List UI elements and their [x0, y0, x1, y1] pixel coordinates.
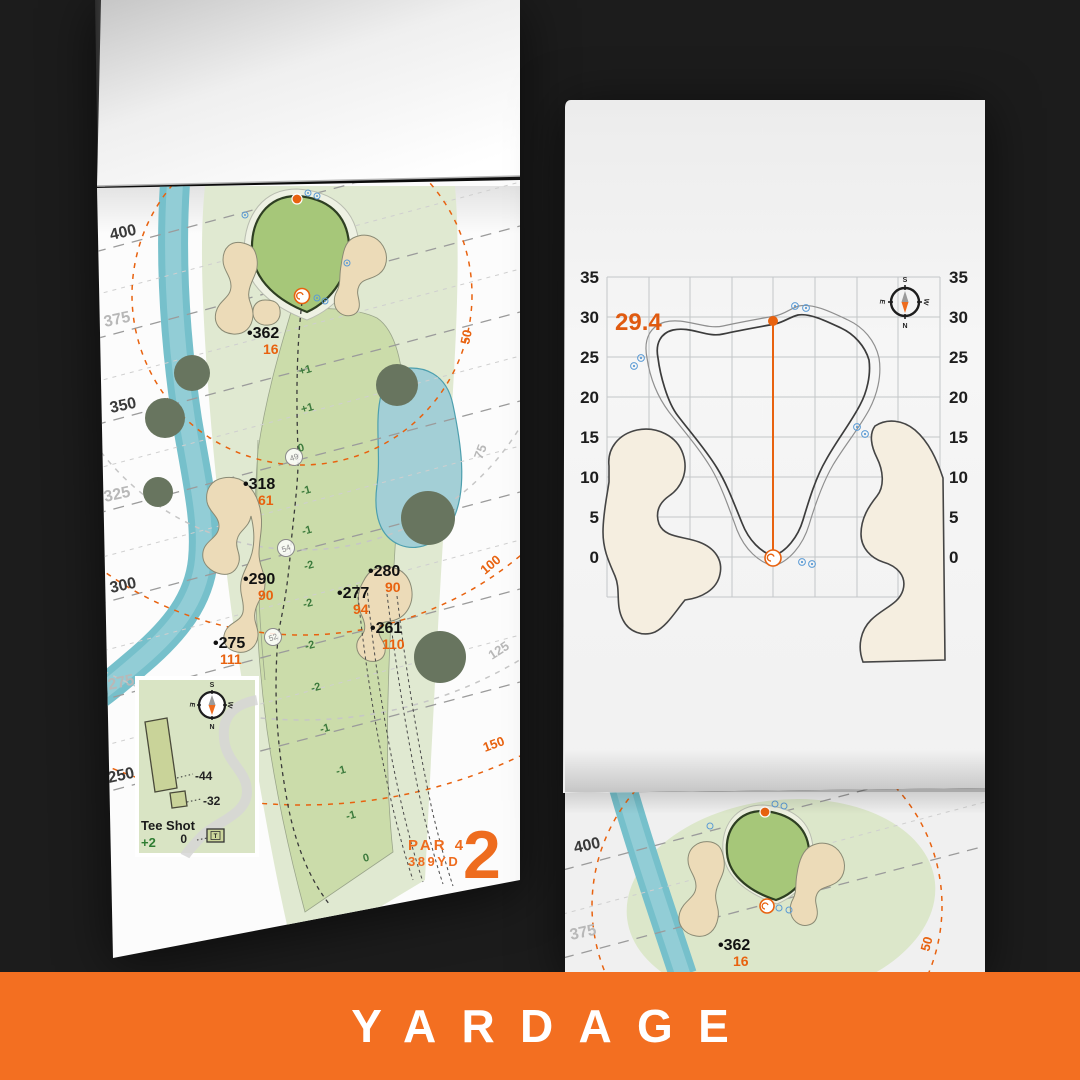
svg-text:30: 30	[949, 308, 968, 327]
svg-text:25: 25	[949, 348, 968, 367]
right-book: 400 375 •362 16 50 35 30 25	[563, 100, 985, 975]
svg-text:90: 90	[385, 579, 401, 595]
yardage-book-scene: 49 54 52 +1 +1 0 -1 -1 -2 -2 -2 -2 -1 -1…	[0, 0, 1080, 1080]
svg-text:•277: •277	[337, 585, 369, 602]
svg-text:90: 90	[258, 587, 274, 603]
front-tee-box	[170, 791, 187, 808]
svg-text:61: 61	[258, 492, 274, 508]
svg-text:16: 16	[733, 953, 749, 969]
svg-text:111: 111	[220, 651, 242, 667]
svg-text:S: S	[903, 277, 908, 284]
svg-text:50: 50	[457, 328, 475, 345]
svg-text:N: N	[209, 724, 214, 731]
svg-text:0: 0	[949, 548, 958, 567]
svg-text:20: 20	[949, 388, 968, 407]
svg-text:N: N	[902, 323, 907, 330]
left-book: 49 54 52 +1 +1 0 -1 -1 -2 -2 -2 -2 -1 -1…	[95, 0, 520, 965]
svg-text:•280: •280	[368, 563, 400, 580]
front-tee-offset: -32	[203, 794, 221, 808]
back-tee-offset: -44	[195, 769, 213, 783]
svg-text:15: 15	[949, 428, 968, 447]
svg-text:5: 5	[949, 508, 958, 527]
svg-text:16: 16	[263, 341, 279, 357]
svg-text:•261: •261	[370, 620, 402, 637]
svg-text:35: 35	[580, 268, 599, 287]
yardage-banner: YARDAGE	[0, 972, 1080, 1080]
inset-title: Tee Shot	[141, 818, 196, 833]
yards-label: 389YD	[408, 854, 460, 869]
svg-text:0: 0	[590, 548, 599, 567]
svg-text:5: 5	[590, 508, 599, 527]
svg-text:•318: •318	[243, 476, 275, 493]
svg-text:30: 30	[580, 308, 599, 327]
svg-text:T: T	[214, 834, 218, 840]
svg-text:•290: •290	[243, 571, 275, 588]
flipped-page[interactable]	[97, 0, 520, 186]
svg-text:94: 94	[353, 601, 369, 617]
pin-dot	[292, 194, 302, 204]
svg-text:•275: •275	[213, 635, 245, 652]
pin-depth-value: 29.4	[615, 309, 662, 336]
svg-text:10: 10	[580, 468, 599, 487]
svg-text:10: 10	[949, 468, 968, 487]
svg-text:20: 20	[580, 388, 599, 407]
zero-offset: 0	[180, 832, 187, 846]
par-label: PAR 4	[408, 837, 466, 854]
svg-text:•362: •362	[718, 937, 750, 954]
tee-shot-inset: -44 -32 0 T Tee Shot +2 S N	[136, 677, 258, 856]
depth-dot	[768, 316, 778, 326]
tee-shot-score: +2	[141, 835, 156, 850]
svg-text:•362: •362	[247, 325, 279, 342]
svg-text:S: S	[210, 682, 215, 689]
svg-text:25: 25	[580, 348, 599, 367]
svg-text:35: 35	[949, 268, 968, 287]
hole-number: 2	[463, 817, 501, 893]
svg-text:110: 110	[382, 636, 405, 652]
svg-text:15: 15	[580, 428, 599, 447]
banner-label: YARDAGE	[326, 999, 754, 1053]
